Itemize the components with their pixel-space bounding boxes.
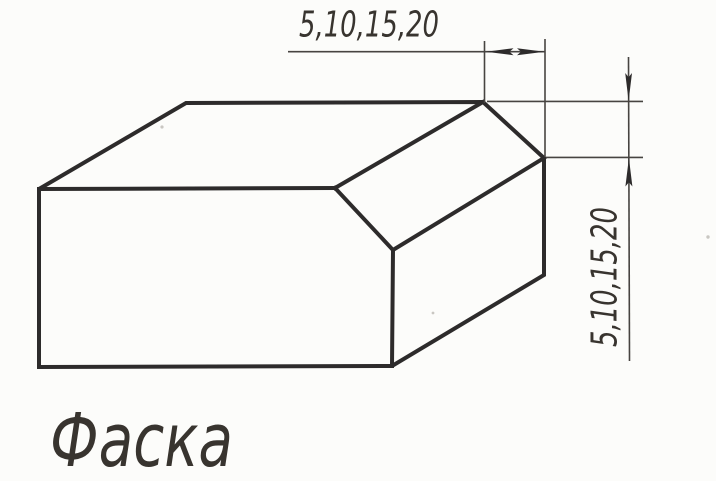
- top-face-front-edge: [39, 188, 335, 189]
- scan-speck: [706, 235, 709, 238]
- dimension-arrow-down-icon: [625, 73, 632, 101]
- scan-speck: [432, 312, 435, 315]
- dimension-arrow-up-icon: [625, 158, 632, 187]
- chamfer-front-edge: [335, 188, 393, 250]
- chamfer-top-edge: [335, 102, 483, 188]
- right-dimension-label: 5,10,15,20: [585, 207, 626, 347]
- right-dimension-line: [629, 57, 630, 361]
- drawing-page: 5,10,15,20 5,10,15,20 Фаска: [0, 0, 716, 481]
- chamfer-bottom-edge: [393, 158, 544, 250]
- front-right-vertical-edge: [392, 250, 393, 366]
- dimension-arrow-right-icon: [517, 48, 545, 55]
- block-silhouette: [39, 102, 544, 367]
- scan-speck: [160, 125, 163, 128]
- dimension-arrow-left-icon: [486, 48, 514, 55]
- drawing-caption: Фаска: [50, 398, 233, 481]
- top-dimension-label: 5,10,15,20: [299, 5, 439, 46]
- chamfer-technical-drawing: 5,10,15,20 5,10,15,20 Фаска: [0, 0, 716, 481]
